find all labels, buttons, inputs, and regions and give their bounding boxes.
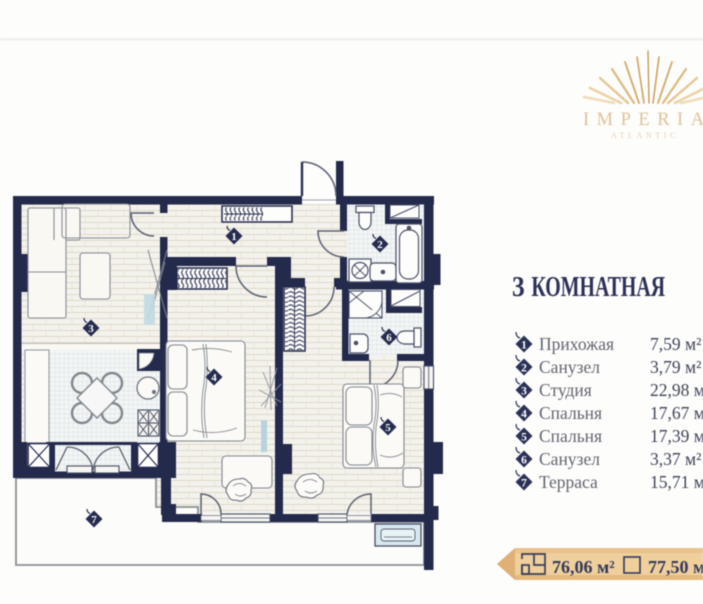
- svg-text:22,98 м²: 22,98 м²: [650, 380, 703, 400]
- svg-text:7,59 м²: 7,59 м²: [650, 334, 701, 354]
- svg-text:17,67 м²: 17,67 м²: [650, 403, 703, 423]
- svg-text:3,37 м²: 3,37 м²: [650, 449, 701, 469]
- svg-text:2: 2: [521, 363, 527, 375]
- svg-text:1: 1: [231, 231, 237, 243]
- svg-text:Терраса: Терраса: [539, 472, 598, 492]
- svg-text:4: 4: [521, 409, 527, 421]
- svg-text:Санузел: Санузел: [539, 357, 600, 377]
- svg-text:1: 1: [521, 340, 527, 352]
- svg-text:Студия: Студия: [539, 380, 592, 400]
- svg-text:Санузел: Санузел: [539, 449, 600, 469]
- svg-text:Спальня: Спальня: [539, 403, 602, 423]
- svg-text:Спальня: Спальня: [539, 426, 602, 446]
- svg-text:7: 7: [91, 514, 97, 526]
- svg-text:15,71 м²: 15,71 м²: [650, 472, 703, 492]
- svg-text:6: 6: [521, 455, 527, 467]
- svg-text:Прихожая: Прихожая: [539, 334, 614, 354]
- svg-text:3: 3: [512, 271, 525, 303]
- svg-text:4: 4: [211, 372, 217, 384]
- svg-text:17,39 м²: 17,39 м²: [650, 426, 703, 446]
- svg-text:3,79 м²: 3,79 м²: [650, 357, 701, 377]
- svg-text:6: 6: [386, 332, 392, 344]
- svg-text:7: 7: [521, 478, 527, 490]
- svg-text:76,06 м²: 76,06 м²: [552, 557, 615, 577]
- svg-text:5: 5: [521, 432, 527, 444]
- svg-text:3: 3: [521, 386, 527, 398]
- svg-text:КОМНАТНАЯ: КОМНАТНАЯ: [531, 271, 665, 303]
- svg-text:77,50 м²: 77,50 м²: [648, 557, 703, 577]
- svg-text:ATLANTIC: ATLANTIC: [611, 131, 679, 140]
- svg-text:2: 2: [377, 239, 383, 251]
- svg-text:5: 5: [385, 422, 391, 434]
- svg-text:3: 3: [88, 323, 94, 335]
- svg-text:IMPERIA: IMPERIA: [583, 110, 703, 130]
